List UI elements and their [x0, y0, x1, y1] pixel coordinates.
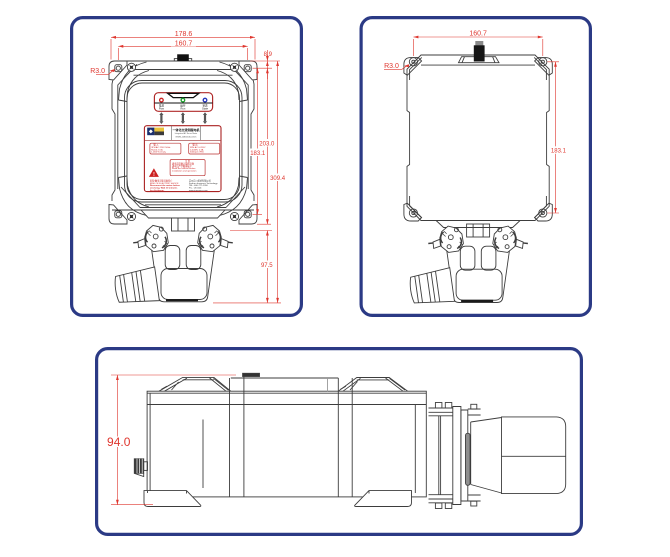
svg-text:178.6: 178.6 — [175, 31, 193, 38]
svg-text:R3.0: R3.0 — [384, 63, 399, 70]
svg-text:183.1: 183.1 — [250, 151, 266, 157]
svg-text:installation and operation: installation and operation — [172, 170, 197, 173]
svg-text:203.0: 203.0 — [259, 142, 275, 148]
svg-text:Pow: Pow — [159, 107, 164, 111]
svg-text:1.0kW S1 Duty: 1.0kW S1 Duty — [151, 151, 166, 154]
svg-text:97.5: 97.5 — [261, 263, 273, 269]
svg-text:160.7: 160.7 — [175, 40, 193, 47]
svg-text:State: State — [202, 107, 209, 111]
svg-text:8.9: 8.9 — [264, 52, 273, 58]
svg-text:160.7: 160.7 — [469, 31, 487, 38]
svg-text:Integrated AC Servo Motor: Integrated AC Servo Motor — [175, 132, 198, 135]
svg-text:309.4: 309.4 — [270, 176, 286, 182]
svg-text:3000rpm IP65: 3000rpm IP65 — [190, 151, 205, 154]
svg-text:for discharge.: for discharge. — [150, 190, 165, 192]
svg-text:183.1: 183.1 — [551, 149, 567, 155]
svg-text:一体化交流伺服电机: 一体化交流伺服电机 — [172, 127, 199, 132]
svg-text:ISMH1-20B30CB-U131X: ISMH1-20B30CB-U131X — [176, 136, 198, 138]
svg-text:Run: Run — [181, 107, 186, 111]
svg-text:94.0: 94.0 — [107, 435, 131, 449]
svg-text:R3.0: R3.0 — [90, 68, 105, 75]
svg-text:www.inovance.com: www.inovance.com — [189, 190, 208, 192]
